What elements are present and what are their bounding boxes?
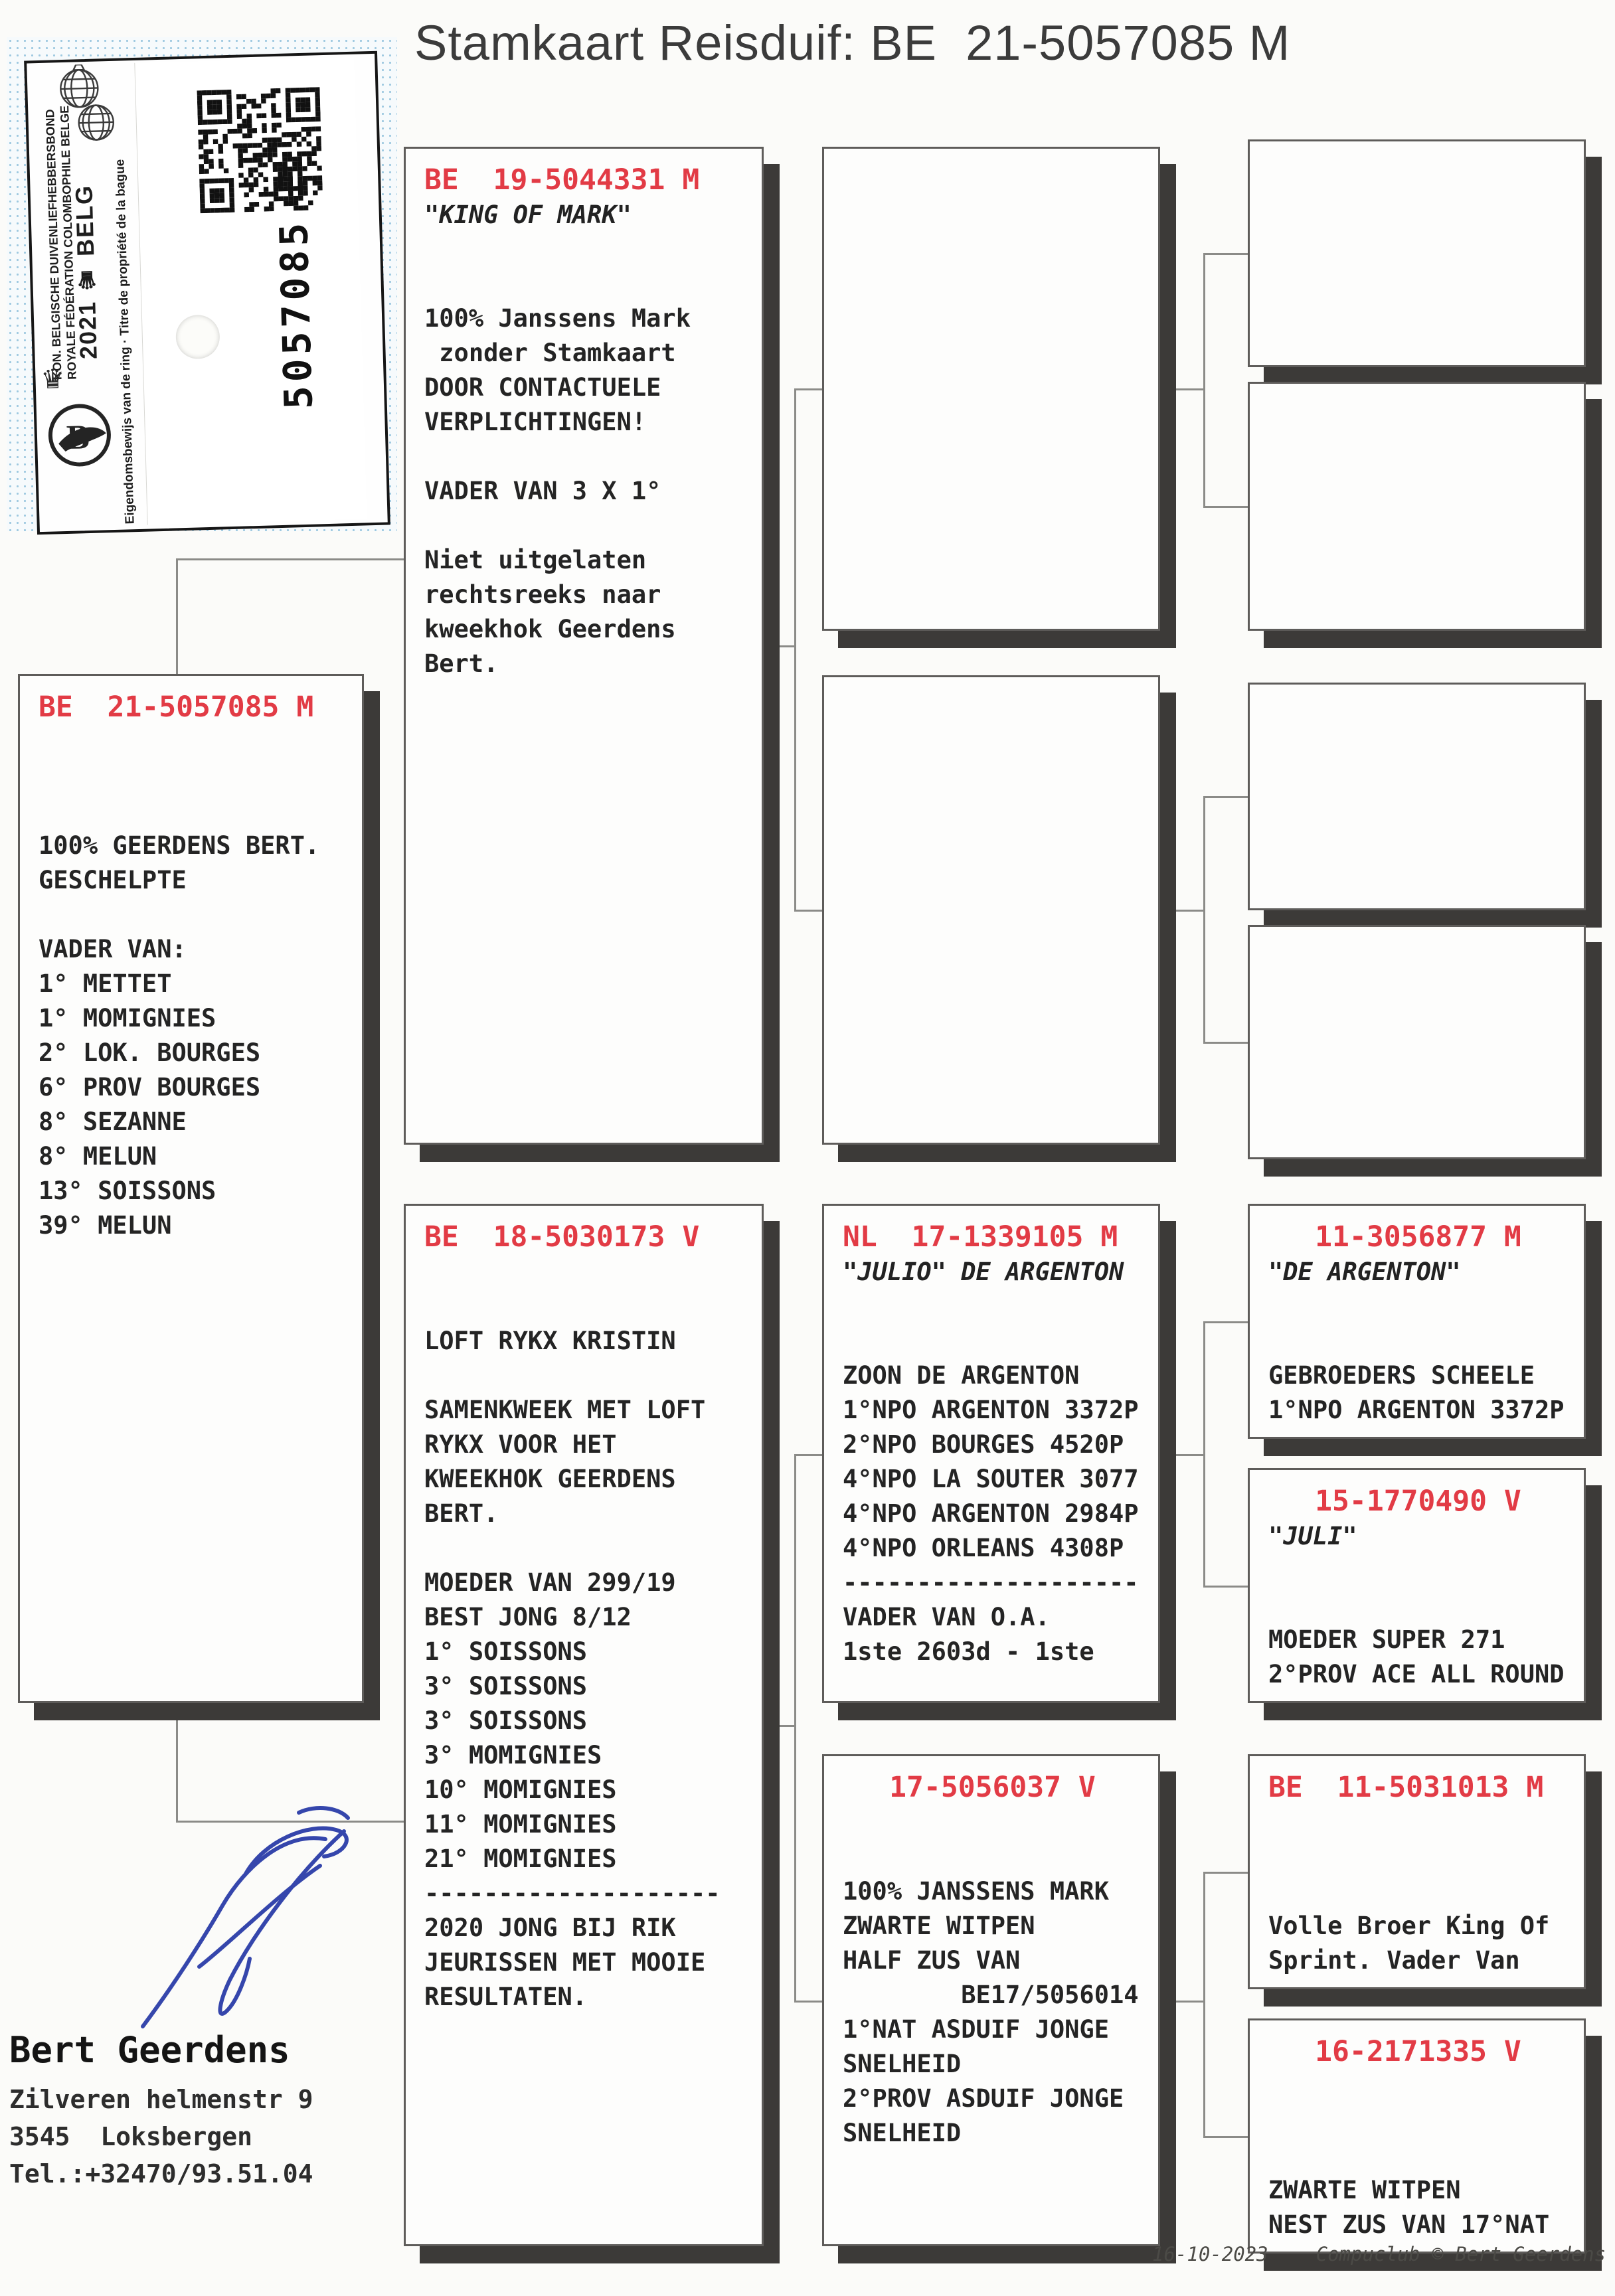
pedigree-box-fmf xyxy=(1248,683,1586,910)
pedigree-box-text: ZOON DE ARGENTON 1°NPO ARGENTON 3372P 2°… xyxy=(843,1289,1142,1669)
ring-number-mmf: BE 11-5031013 M xyxy=(1268,1769,1568,1805)
svg-text:♛: ♛ xyxy=(41,364,65,395)
connector-line xyxy=(1203,2136,1248,2138)
connector-line xyxy=(1160,910,1203,912)
pigeon-name: "JULIO" DE ARGENTON xyxy=(843,1255,1142,1289)
page-title: Stamkaart Reisduif: BE 21-5057085 M xyxy=(414,15,1290,71)
pedigree-box-text: 100% JANSSENS MARK ZWARTE WITPEN HALF ZU… xyxy=(843,1805,1142,2151)
qr-code-icon xyxy=(197,87,323,213)
connector-line xyxy=(1203,1321,1248,1323)
pedigree-box-father: BE 19-5044331 M "KING OF MARK" 100% Jans… xyxy=(404,147,764,1145)
print-date: 16-10-2023 xyxy=(1152,2243,1268,2265)
connector-line xyxy=(794,388,796,910)
connector-line xyxy=(794,388,822,390)
pigeon-name: "KING OF MARK" xyxy=(424,198,746,232)
pigeon-name: "DE ARGENTON" xyxy=(1268,1255,1568,1289)
pedigree-box-text: LOFT RYKX KRISTIN SAMENKWEEK MET LOFT RY… xyxy=(424,1255,746,2014)
connector-line xyxy=(1203,1586,1248,1588)
connector-line xyxy=(1203,1872,1248,1874)
connector-line xyxy=(176,558,178,675)
ring-number-subject: BE 21-5057085 M xyxy=(39,689,346,725)
pedigree-box-mother: BE 18-5030173 V LOFT RYKX KRISTIN SAMENK… xyxy=(404,1204,764,2246)
footer: 16-10-2023 Compuclub © Bert Geerdens xyxy=(1152,2243,1606,2265)
pedigree-box-ff xyxy=(822,147,1160,631)
pedigree-box-fm xyxy=(822,675,1160,1145)
pedigree-box-mfm: 15-1770490 V "JULI" MOEDER SUPER 271 2°P… xyxy=(1248,1468,1586,1703)
ring-number-mf: NL 17-1339105 M xyxy=(843,1219,1142,1255)
connector-line xyxy=(794,1454,796,2001)
ring-label: 5057085 xyxy=(134,57,367,525)
connector-line xyxy=(794,2001,822,2003)
connector-line xyxy=(1160,1454,1203,1456)
ring-number-mm: 17-5056037 V xyxy=(843,1769,1142,1805)
connector-line xyxy=(1203,1042,1248,1044)
pedigree-card-page: Stamkaart Reisduif: BE 21-5057085 M KON.… xyxy=(0,0,1615,2296)
pedigree-box-text: 100% Janssens Mark zonder Stamkaart DOOR… xyxy=(424,232,746,681)
pedigree-box-mmm: 16-2171335 V ZWARTE WITPEN NEST ZUS VAN … xyxy=(1248,2018,1586,2254)
federation-b-crest-icon: ♛ B xyxy=(37,361,120,489)
pedigree-box-subject: BE 21-5057085 M 100% GEERDENS BERT. GESC… xyxy=(18,674,364,1703)
pedigree-box-text: 100% GEERDENS BERT. GESCHELPTE VADER VAN… xyxy=(39,725,346,1243)
ring-number-mmm: 16-2171335 V xyxy=(1268,2034,1568,2070)
connector-line xyxy=(1203,1872,1205,2136)
connector-line xyxy=(794,910,822,912)
ring-number-mfm: 15-1770490 V xyxy=(1268,1483,1568,1519)
stamp-year-country: 2021 ♛ BELG xyxy=(71,213,103,360)
connector-line xyxy=(1203,506,1248,508)
ring-number: 5057085 xyxy=(271,209,321,410)
pedigree-box-ffm xyxy=(1248,382,1586,631)
connector-line xyxy=(764,1725,794,1727)
pedigree-box-text: MOEDER SUPER 271 2°PROV ACE ALL ROUND xyxy=(1268,1554,1568,1692)
connector-line xyxy=(1203,253,1205,506)
owner-address: Zilveren helmenstr 9 3545 Loksbergen Tel… xyxy=(9,2081,313,2192)
connector-line xyxy=(1203,253,1248,255)
pedigree-box-text: Volle Broer King Of Sprint. Vader Van xyxy=(1268,1805,1568,1978)
ring-number-mother: BE 18-5030173 V xyxy=(424,1219,746,1255)
connector-line xyxy=(1160,2001,1203,2003)
connector-line xyxy=(1203,1321,1205,1586)
pedigree-box-fmm xyxy=(1248,925,1586,1159)
pigeon-name: "JULI" xyxy=(1268,1519,1568,1554)
connector-line xyxy=(1160,388,1203,390)
owner-name: Bert Geerdens xyxy=(9,2029,290,2071)
connector-line xyxy=(1203,796,1248,798)
connector-line xyxy=(1203,796,1205,1042)
connector-line xyxy=(764,645,794,647)
connector-line xyxy=(176,558,404,560)
pedigree-box-mm: 17-5056037 V 100% JANSSENS MARK ZWARTE W… xyxy=(822,1754,1160,2246)
ring-number-mff: 11-3056877 M xyxy=(1268,1219,1568,1255)
pedigree-box-mff: 11-3056877 M "DE ARGENTON" GEBROEDERS SC… xyxy=(1248,1204,1586,1439)
software-credit: Compuclub © Bert Geerdens xyxy=(1316,2243,1606,2265)
pedigree-box-mmf: BE 11-5031013 M Volle Broer King Of Spri… xyxy=(1248,1754,1586,1989)
ring-ownership-stamp: KON. BELGISCHE DUIVENLIEFHEBBERSBOND ROY… xyxy=(7,37,397,531)
pedigree-box-mf: NL 17-1339105 M "JULIO" DE ARGENTON ZOON… xyxy=(822,1204,1160,1703)
pedigree-box-text: GEBROEDERS SCHEELE 1°NPO ARGENTON 3372P xyxy=(1268,1289,1568,1428)
punch-hole xyxy=(175,315,220,360)
connector-line xyxy=(794,1454,822,1456)
pedigree-box-fff xyxy=(1248,139,1586,367)
pedigree-box-text: ZWARTE WITPEN NEST ZUS VAN 17°NAT xyxy=(1268,2070,1568,2242)
stamp-frame: KON. BELGISCHE DUIVENLIEFHEBBERSBOND ROY… xyxy=(24,51,390,535)
ring-number-father: BE 19-5044331 M xyxy=(424,162,746,198)
